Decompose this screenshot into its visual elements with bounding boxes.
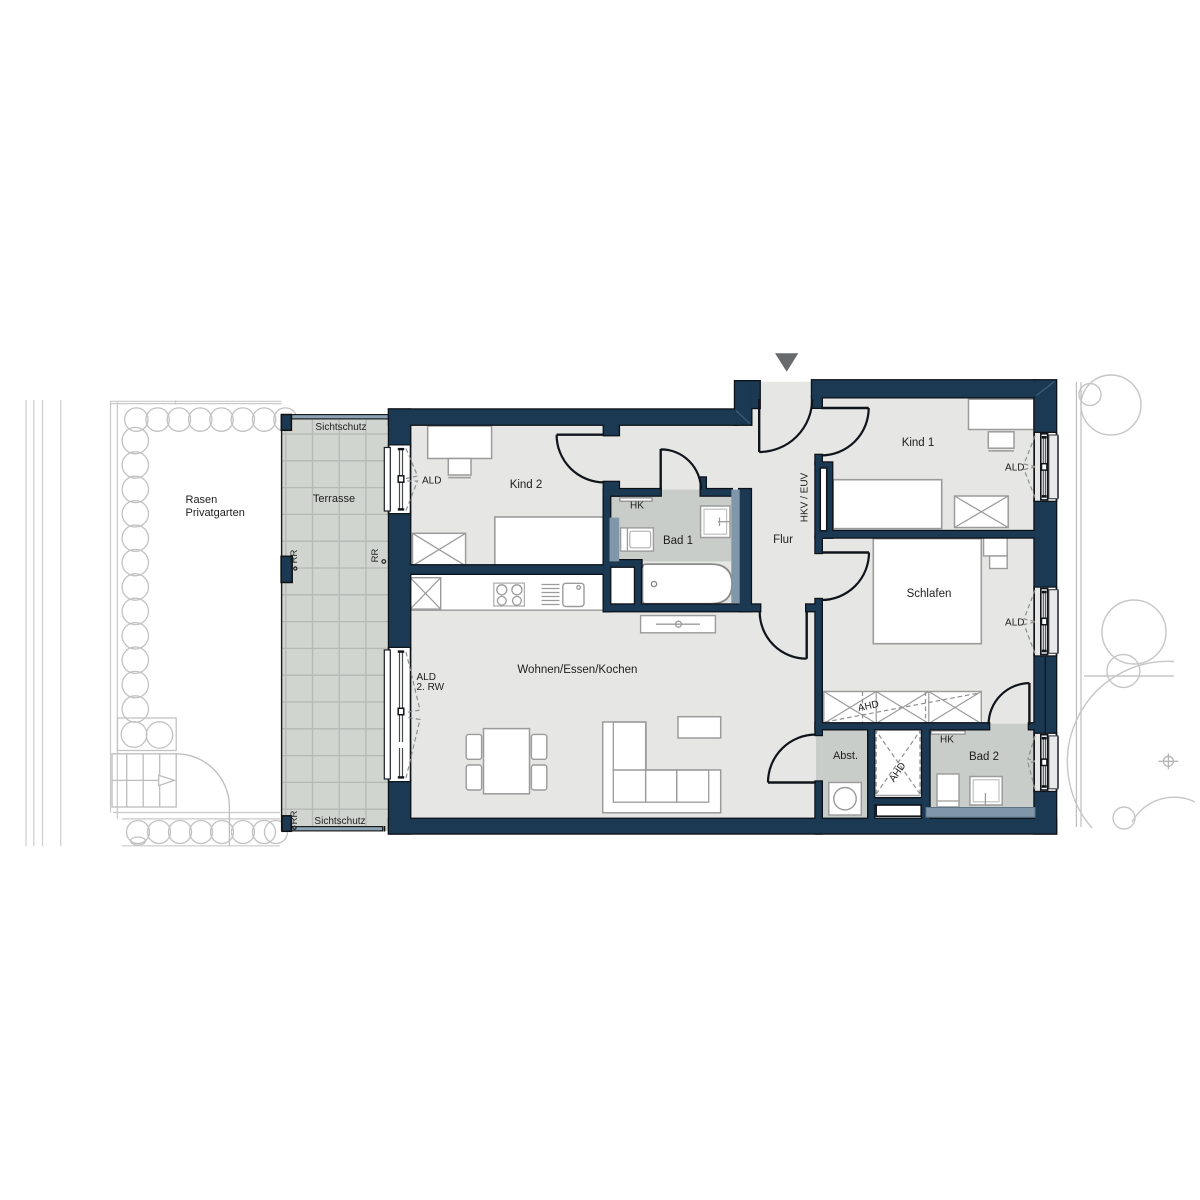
svg-text:Schlafen: Schlafen: [907, 588, 952, 600]
svg-text:Kind 1: Kind 1: [902, 437, 935, 449]
svg-text:Wohnen/Essen/Kochen: Wohnen/Essen/Kochen: [517, 664, 637, 676]
svg-text:ALD: ALD: [1005, 618, 1024, 629]
svg-text:Flur: Flur: [773, 534, 793, 546]
svg-text:Terrasse: Terrasse: [313, 493, 355, 505]
svg-text:Bad 2: Bad 2: [969, 751, 999, 763]
svg-text:HKV / EUV: HKV / EUV: [800, 472, 811, 522]
svg-text:Rasen: Rasen: [186, 494, 218, 506]
svg-text:Bad 1: Bad 1: [663, 535, 693, 547]
svg-text:Privatgarten: Privatgarten: [186, 507, 245, 519]
svg-text:HK: HK: [630, 501, 644, 512]
svg-text:Sichtschutz: Sichtschutz: [314, 816, 365, 827]
svg-text:Abst.: Abst.: [833, 750, 858, 762]
svg-text:ALD: ALD: [422, 476, 441, 487]
svg-text:HK: HK: [940, 735, 954, 746]
svg-text:RR: RR: [289, 550, 300, 564]
svg-text:Sichtschutz: Sichtschutz: [315, 422, 366, 433]
svg-text:2. RW: 2. RW: [417, 682, 445, 693]
svg-text:RR: RR: [289, 811, 300, 825]
svg-text:ALD: ALD: [1005, 462, 1024, 473]
svg-text:Kind 2: Kind 2: [510, 479, 543, 491]
svg-text:RR: RR: [370, 549, 381, 563]
